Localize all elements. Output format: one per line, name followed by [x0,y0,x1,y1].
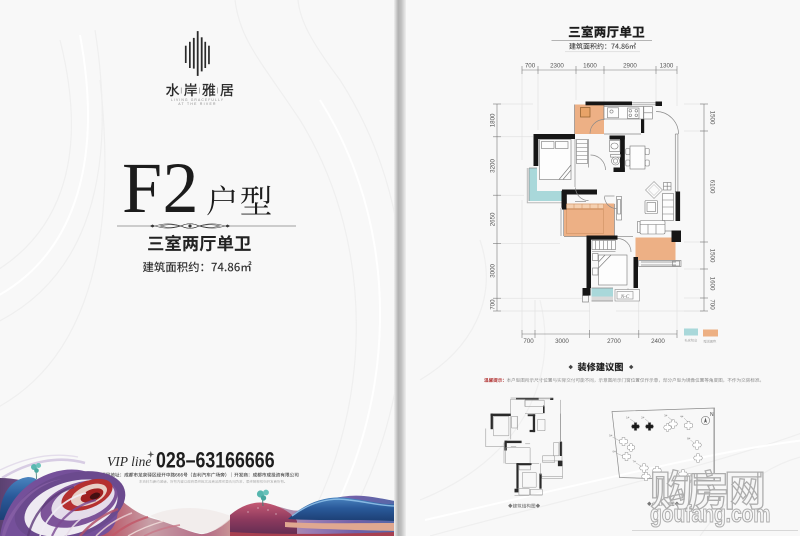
svg-text:N: N [710,412,714,418]
svg-text:700: 700 [490,299,497,310]
svg-text:1500: 1500 [709,111,716,125]
svg-text:3000: 3000 [555,338,569,345]
svg-text:1500: 1500 [709,249,716,263]
svg-text:1600: 1600 [709,277,716,291]
svg-text:3200: 3200 [490,159,497,173]
svg-text:2900: 2900 [623,63,637,70]
svg-text:700: 700 [525,63,536,70]
svg-text:2#: 2# [641,416,645,420]
svg-text:1600: 1600 [583,63,597,70]
svg-text:AT THE RIVER: AT THE RIVER [178,102,217,106]
svg-text:8#: 8# [687,437,691,441]
svg-text:7#: 7# [633,460,637,464]
svg-text:5#: 5# [609,434,613,438]
svg-text:1#: 1# [626,416,630,420]
svg-text:goufang.com: goufang.com [650,500,770,528]
svg-text:1300: 1300 [660,63,674,70]
svg-text:6100: 6100 [709,180,716,194]
svg-text:3000: 3000 [490,263,497,277]
svg-text:700: 700 [709,299,716,310]
svg-text:2300: 2300 [550,63,564,70]
svg-text:028–63166666: 028–63166666 [156,449,275,473]
svg-text:2400: 2400 [651,338,665,345]
svg-text:N-C: N-C [620,295,630,300]
svg-text:2700: 2700 [607,338,621,345]
svg-text:F2: F2 [122,148,199,228]
svg-text:700: 700 [523,338,534,345]
svg-text:2650: 2650 [490,212,497,226]
svg-text:1800: 1800 [490,113,497,127]
svg-text:VIP line: VIP line [107,454,151,469]
svg-text:3#: 3# [664,414,668,418]
svg-text:6#: 6# [613,450,617,454]
svg-text:4#: 4# [680,415,684,419]
